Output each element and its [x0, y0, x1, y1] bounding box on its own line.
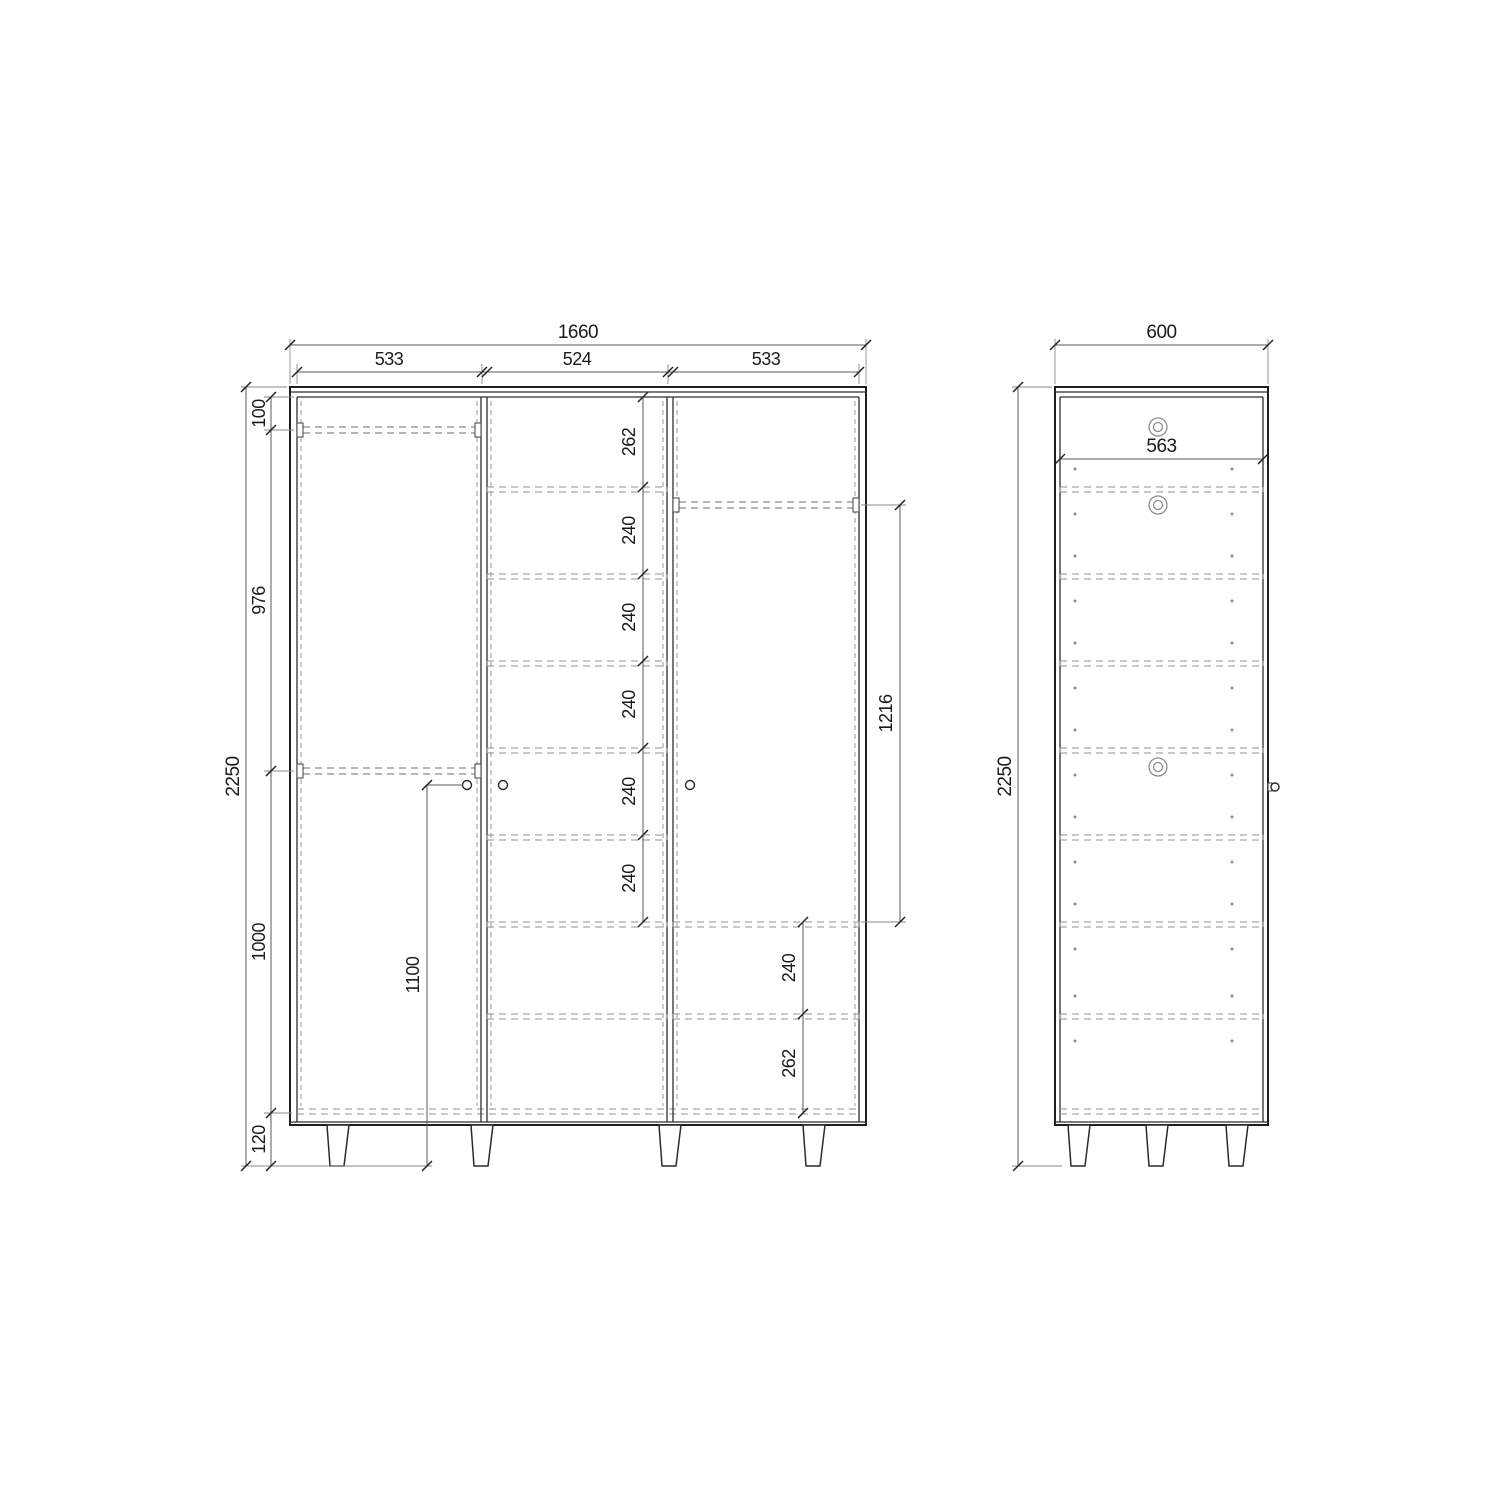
- pin-hole-dot: [1231, 729, 1234, 732]
- side-rod-symbols: [1149, 418, 1167, 776]
- technical-drawing-canvas: 1660533524533225010097610001202622402402…: [0, 0, 1500, 1500]
- dim-label: 240: [619, 603, 639, 632]
- pin-hole-dot: [1074, 1040, 1077, 1043]
- door-knob: [686, 781, 695, 790]
- dim-label: 533: [375, 349, 404, 369]
- rod-bracket: [853, 498, 859, 512]
- pin-hole-dot: [1231, 861, 1234, 864]
- rod-bracket: [475, 764, 481, 778]
- door-knob: [499, 781, 508, 790]
- wardrobe-dimension-drawing: 1660533524533225010097610001202622402402…: [0, 0, 1500, 1500]
- dim-label: 100: [249, 399, 269, 428]
- front-door-knobs: [463, 781, 695, 790]
- pin-hole-dot: [1231, 1040, 1234, 1043]
- front-view: 1660533524533225010097610001202622402402…: [223, 322, 906, 1171]
- rod-mount-symbol-outer: [1149, 496, 1167, 514]
- pin-hole-dot: [1231, 816, 1234, 819]
- dim-label: 976: [249, 586, 269, 615]
- dim-label: 262: [619, 427, 639, 456]
- dim-label: 1216: [876, 694, 896, 733]
- leg: [1146, 1125, 1168, 1166]
- dim-label: 240: [619, 864, 639, 893]
- pin-hole-dot: [1231, 687, 1234, 690]
- pin-hole-dot: [1231, 903, 1234, 906]
- side-pin-holes: [1074, 468, 1234, 1043]
- dim-label: 262: [779, 1049, 799, 1078]
- dim-label: 240: [779, 953, 799, 982]
- dim-label: 600: [1146, 322, 1176, 343]
- pin-hole-dot: [1074, 774, 1077, 777]
- side-door-knob: [1271, 783, 1279, 791]
- dim-label: 2250: [995, 756, 1016, 796]
- front-hanging-rods: [297, 423, 859, 778]
- leg: [659, 1125, 681, 1166]
- side-dimensions: 6005632250: [995, 322, 1273, 1171]
- rod-bracket: [673, 498, 679, 512]
- dim-label: 1000: [249, 922, 269, 961]
- front-dimensions: 1660533524533225010097610001202622402402…: [223, 322, 906, 1171]
- rod-mount-symbol-inner: [1154, 501, 1163, 510]
- leg: [1226, 1125, 1248, 1166]
- leg: [327, 1125, 349, 1166]
- dim-label: 120: [249, 1125, 269, 1154]
- pin-hole-dot: [1074, 513, 1077, 516]
- pin-hole-dot: [1074, 816, 1077, 819]
- pin-hole-dot: [1074, 600, 1077, 603]
- pin-hole-dot: [1074, 861, 1077, 864]
- pin-hole-dot: [1231, 948, 1234, 951]
- rod-mount-symbol-outer: [1149, 418, 1167, 436]
- pin-hole-dot: [1231, 642, 1234, 645]
- side-shelves: [1060, 487, 1263, 1019]
- rod-mount-symbol-inner: [1154, 423, 1163, 432]
- pin-hole-dot: [1074, 903, 1077, 906]
- dim-label: 533: [752, 349, 781, 369]
- leg: [471, 1125, 493, 1166]
- rod-mount-symbol-outer: [1149, 758, 1167, 776]
- rod-bracket: [297, 423, 303, 437]
- dim-label: 1100: [403, 956, 423, 993]
- pin-hole-dot: [1074, 729, 1077, 732]
- side-legs: [1068, 1125, 1248, 1166]
- leg: [1068, 1125, 1090, 1166]
- door-knob: [463, 781, 472, 790]
- dim-label: 2250: [223, 756, 244, 796]
- rod-bracket: [475, 423, 481, 437]
- dim-label: 563: [1146, 436, 1176, 457]
- dim-label: 240: [619, 777, 639, 806]
- dim-label: 1660: [558, 322, 598, 343]
- rod-mount-symbol-inner: [1154, 763, 1163, 772]
- dim-label: 524: [563, 349, 592, 369]
- rod-bracket: [297, 764, 303, 778]
- pin-hole-dot: [1074, 642, 1077, 645]
- pin-hole-dot: [1074, 468, 1077, 471]
- pin-hole-dot: [1074, 555, 1077, 558]
- pin-hole-dot: [1231, 600, 1234, 603]
- dim-label: 240: [619, 516, 639, 545]
- pin-hole-dot: [1231, 513, 1234, 516]
- pin-hole-dot: [1231, 995, 1234, 998]
- dim-label: 240: [619, 690, 639, 719]
- pin-hole-dot: [1231, 555, 1234, 558]
- pin-hole-dot: [1074, 687, 1077, 690]
- pin-hole-dot: [1231, 774, 1234, 777]
- front-legs: [327, 1125, 825, 1166]
- leg: [803, 1125, 825, 1166]
- pin-hole-dot: [1074, 948, 1077, 951]
- pin-hole-dot: [1074, 995, 1077, 998]
- side-view: 6005632250: [995, 322, 1279, 1171]
- pin-hole-dot: [1231, 468, 1234, 471]
